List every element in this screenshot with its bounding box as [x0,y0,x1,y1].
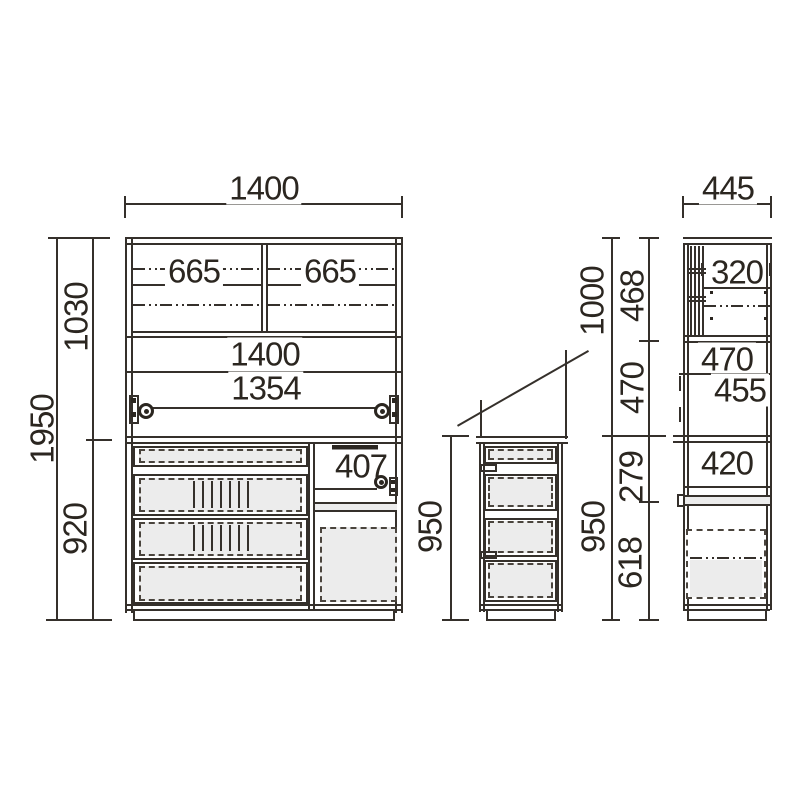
dim-label-upper-unit-height: 1000 [576,266,609,335]
shelf-pin [764,317,767,320]
dim-label-upper-inner-height: 468 [616,270,649,322]
flap-hinge-knob-left [138,403,154,419]
slide-shelf-bottom [683,504,770,506]
dim-tick [86,439,112,441]
shelf-hidden-line [133,304,261,306]
dim-tick [639,619,659,621]
dim-label-lower-height: 920 [59,503,92,555]
lock-screw [391,488,395,492]
flap-open-projection-line [457,350,589,427]
dim-line-lower-unit-height [450,436,452,621]
countertop-line [125,442,403,444]
side-shelf-line [704,287,770,289]
base-line [479,604,563,606]
base-line [125,609,403,611]
dim-tick [639,237,659,239]
dim-tick [442,619,469,621]
side-countertop [673,435,772,443]
flap-door-edge-line [152,407,376,409]
dim-label-door-left: 665 [165,255,223,288]
dim-tick [602,619,620,621]
shelf-pin [710,291,713,294]
hinge-screw [392,398,397,403]
flap-edge-mark [679,407,681,422]
flap-edge-mark [679,376,681,391]
niche-door-hidden [320,527,397,602]
base-line [683,609,770,611]
dim-tick [682,196,684,218]
slide-shelf-bottom [315,510,397,512]
dim-tick [701,263,703,276]
dim-tick [48,237,110,239]
dim-label-upper-inner-depth: 320 [708,256,766,289]
hinge-screw [392,412,397,417]
side-inner-line [683,486,770,488]
mid-drawer-box-2 [488,477,553,507]
drawer-box-4 [139,566,302,601]
base-line [683,604,770,606]
mid-drawer-box-1 [488,449,553,460]
sliding-door-track [694,246,696,336]
front-top-board [125,237,403,245]
dim-tick [124,196,126,218]
side-back-panel [766,244,772,610]
track-hatch [689,294,706,302]
drawer-box-1 [139,449,302,463]
sliding-door-track [690,246,692,336]
front-left-wall [125,237,133,613]
dim-tick [602,237,620,239]
slide-shelf-knob [677,494,685,507]
shelf-pin [764,291,767,294]
dim-tick [602,435,666,437]
front-divider-panel [308,444,315,610]
kick-plate [133,619,395,621]
dim-label-opening-width: 1354 [228,372,303,405]
base-line [125,604,403,606]
dim-tick [46,619,112,621]
door-inner-fill [690,560,762,597]
door-track-line [131,331,397,333]
dim-label-door-right: 665 [301,255,359,288]
door-inner-shelf-hidden [690,557,762,559]
base-line [479,609,563,611]
shelf-pin [710,317,713,320]
dim-label-upper-height: 1030 [60,282,93,351]
front-center-mullion [261,245,268,332]
dim-tick [639,340,659,342]
kick-plate [486,619,556,621]
countertop-line [125,436,403,438]
dim-label-counter-depth: 455 [711,374,769,407]
flap-door-open-line [565,350,567,439]
mid-countertop [476,436,568,444]
lock-knob-icon [374,475,388,489]
mid-drawer-box-4 [488,563,553,598]
flap-hinge-knob-right [374,403,390,419]
flap-door-closed-line [480,400,482,436]
dim-label-counter-section-height: 279 [615,451,648,503]
dim-label-overall-width: 1400 [226,172,301,205]
mid-drawer-rail [480,551,497,559]
dim-tick [401,196,403,218]
dim-label-lower-inner-height: 420 [698,447,756,480]
hinge-screw [131,412,136,417]
drawer-divider-slots [193,481,250,508]
track-hatch [689,266,706,274]
shelf-hidden-line [704,305,770,307]
hinge-screw [131,398,136,403]
furniture-dimension-diagram: 1400 445 1950 1030 920 665 665 1400 1354 [0,0,800,800]
mid-drawer-box-3 [488,521,553,553]
sliding-door-track [698,246,700,336]
kick-plate [687,619,767,621]
dim-label-counter-width: 1400 [227,338,302,371]
dim-tick [770,196,772,218]
slide-shelf [683,497,770,504]
dim-label-lower-unit-height-side: 950 [577,501,610,553]
mid-drawer-rail [480,464,497,472]
dim-tick [442,435,469,437]
dim-tick [769,263,771,276]
niche-shelf-line [315,488,377,490]
side-top-board [683,237,772,245]
mid-back-panel [557,442,563,612]
sliding-door-track [702,246,704,336]
shelf-hidden-line [268,304,396,306]
dim-label-overall-height: 1950 [26,394,59,463]
dim-label-open-section-height: 470 [616,362,649,414]
dim-label-lower-unit-height: 950 [414,501,447,553]
lock-screw [391,480,395,484]
drawer-divider-slots [193,525,250,551]
dim-label-door-section-height: 618 [614,537,647,589]
dim-label-depth: 445 [699,172,757,205]
